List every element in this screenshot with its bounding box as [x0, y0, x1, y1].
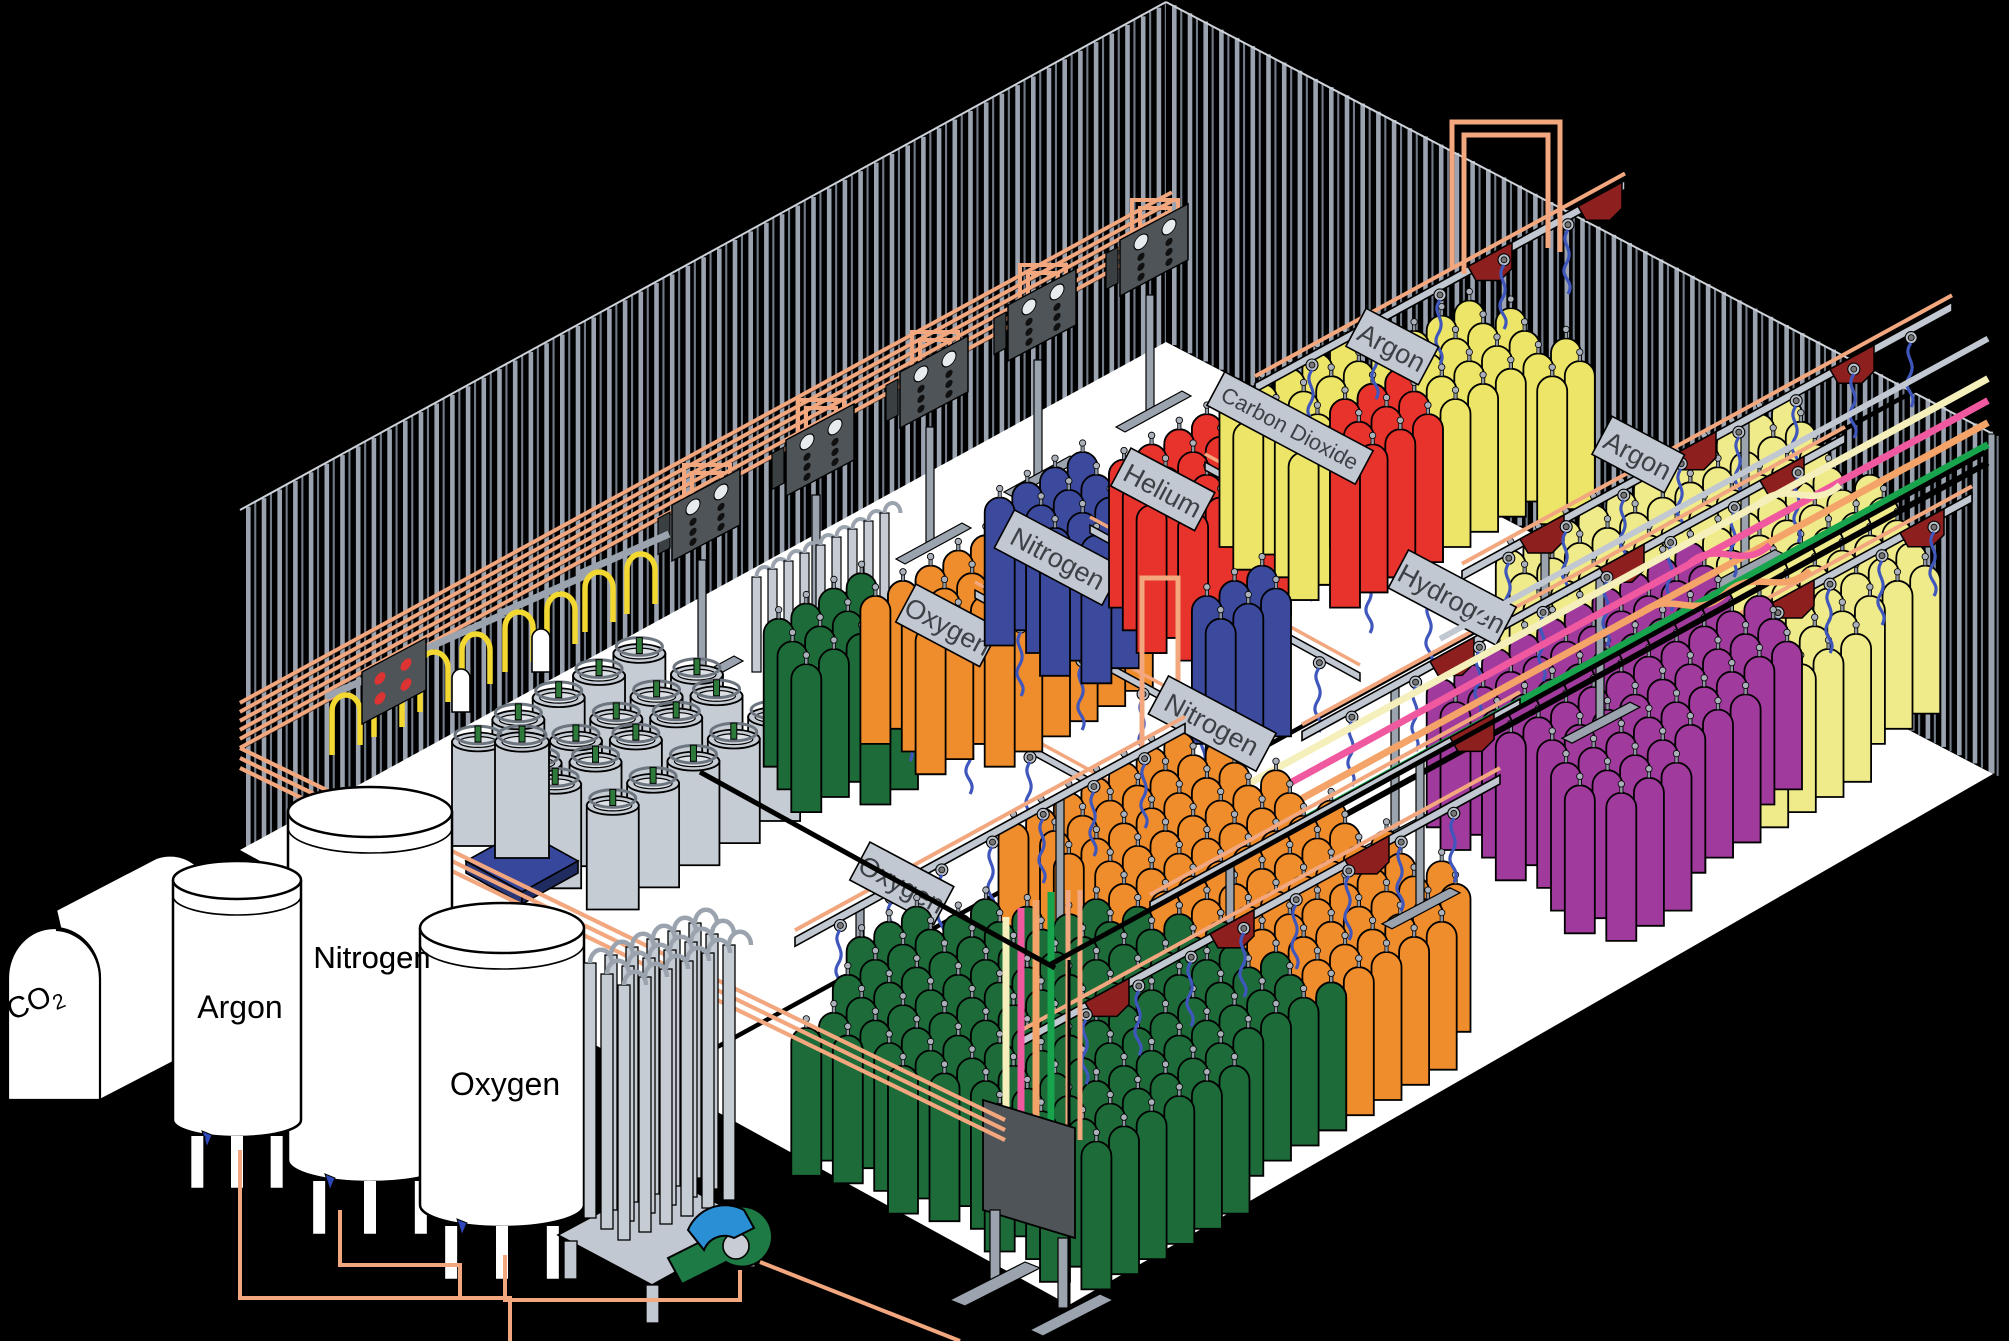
svg-text:Argon: Argon — [197, 989, 282, 1025]
svg-text:Nitrogen: Nitrogen — [313, 940, 430, 975]
svg-text:Oxygen: Oxygen — [450, 1066, 560, 1102]
